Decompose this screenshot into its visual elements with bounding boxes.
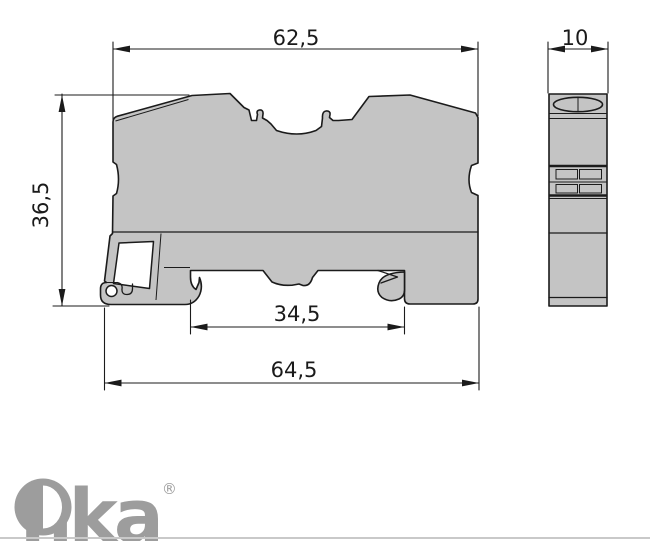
dimension-depth: 10 [548, 26, 608, 93]
dimension-label-slot-width: 34,5 [274, 302, 321, 326]
arrowhead-left [191, 324, 208, 331]
arrowhead-right [461, 46, 478, 53]
arrowhead-right [388, 324, 405, 331]
registered-trademark-symbol: ® [162, 480, 177, 498]
front-view [101, 94, 479, 305]
brand-logo: nka ® [14, 478, 177, 541]
arrowhead-right [591, 46, 608, 53]
arrowhead-top [59, 95, 66, 112]
dimension-slot-width: 34,5 [191, 300, 405, 334]
dimension-label-height: 36,5 [29, 182, 53, 229]
side-body-outline [549, 94, 607, 306]
drawing-canvas: 62,5 10 36,5 34,5 64 [0, 0, 650, 541]
arrowhead-bottom [59, 289, 66, 306]
arrowhead-left [113, 46, 130, 53]
technical-drawing: 62,5 10 36,5 34,5 64 [0, 0, 650, 541]
rail-clip-spring [378, 272, 405, 301]
clip-window [114, 242, 154, 289]
side-view [549, 94, 607, 306]
logo-o-mark [14, 478, 72, 536]
dimension-label-total-width: 64,5 [271, 358, 318, 382]
front-body-outline [101, 94, 479, 305]
arrowhead-right [462, 380, 479, 387]
footer-divider [0, 537, 650, 539]
foot-hook-hole [106, 286, 117, 297]
dimension-label-top-width: 62,5 [273, 26, 320, 50]
arrowhead-left [105, 380, 122, 387]
dimension-label-depth: 10 [562, 26, 589, 50]
